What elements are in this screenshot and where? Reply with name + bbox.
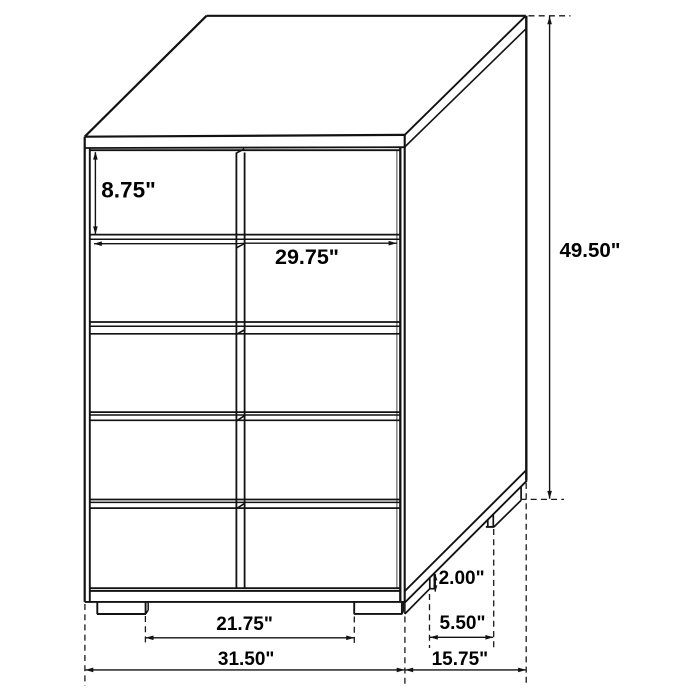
svg-text:21.75": 21.75" [216, 614, 273, 635]
svg-text:29.75": 29.75" [275, 245, 339, 269]
svg-text:15.75": 15.75" [432, 649, 489, 670]
svg-text:49.50": 49.50" [560, 239, 621, 262]
svg-text:8.75": 8.75" [101, 178, 155, 203]
svg-text:5.50": 5.50" [440, 613, 486, 634]
svg-text:2.00": 2.00" [439, 568, 485, 589]
svg-text:31.50": 31.50" [218, 649, 275, 670]
